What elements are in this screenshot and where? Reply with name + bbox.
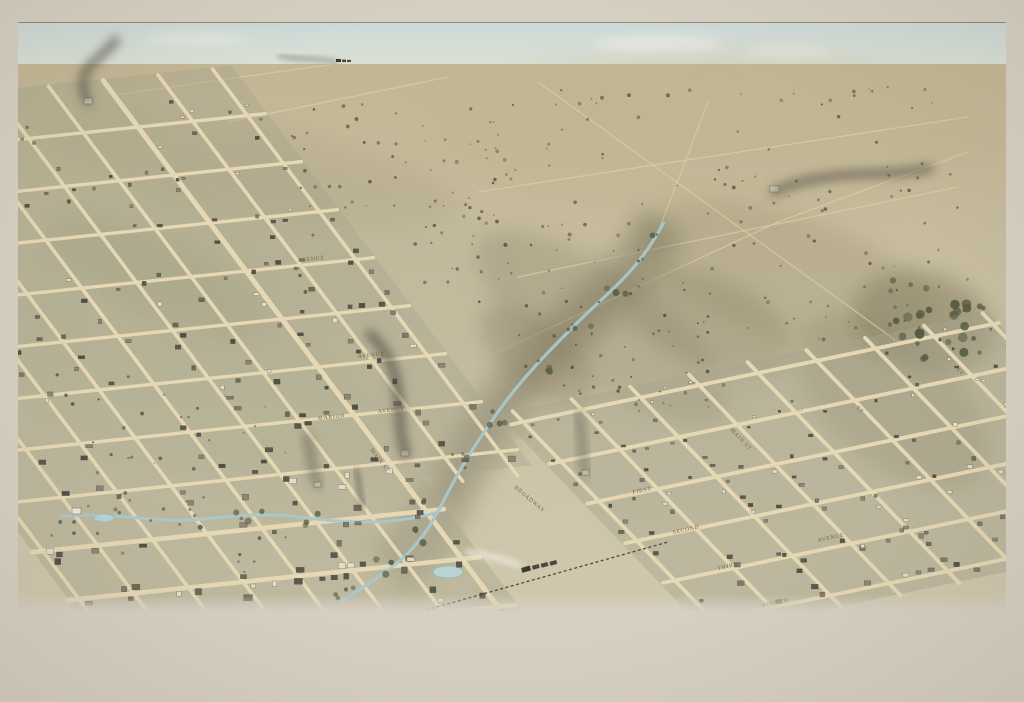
mill-pond bbox=[433, 566, 463, 578]
caption-strip: SHOBER & CARQUEVILLE LITH. CHICAGO Drawn… bbox=[0, 612, 1024, 702]
map-artwork: MARION AVENUE AVENUE AVENUE MAIN ST. BRO… bbox=[18, 22, 1006, 612]
lithograph-page: MARION AVENUE AVENUE AVENUE MAIN ST. BRO… bbox=[0, 0, 1024, 702]
creek-pond bbox=[94, 514, 114, 522]
artwork-bottom-fade bbox=[18, 594, 1006, 612]
